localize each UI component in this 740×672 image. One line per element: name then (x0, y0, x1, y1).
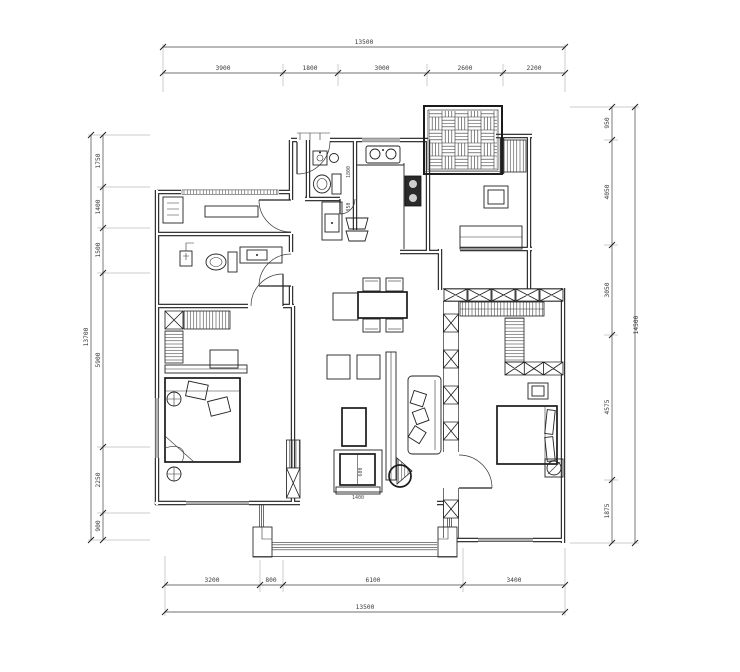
dim-label: 3200 (205, 577, 220, 584)
x-column-closet (165, 311, 183, 329)
x-column-left-band (444, 314, 459, 518)
window-bedroom2-bottom (478, 538, 533, 543)
dim-label: 1800 (346, 166, 352, 178)
dim-label: 800 (265, 577, 276, 584)
dining-chair-icon (363, 278, 380, 291)
balcony-tile-pattern (429, 111, 497, 169)
low-cabinet-icon (460, 226, 522, 249)
desk-icon (484, 186, 508, 208)
dining-chair-icon (386, 319, 403, 332)
dining-chair-icon (386, 278, 403, 291)
dim-label: 14500 (633, 315, 640, 334)
dim-label: 6100 (366, 577, 381, 584)
bay-side-window (260, 505, 452, 527)
dim-label: 3050 (604, 282, 611, 297)
cooktop-icon (405, 176, 421, 206)
dim-label: 1800 (303, 65, 318, 72)
dim-label: 4575 (604, 399, 611, 414)
bedroom1-door (251, 274, 283, 306)
shelf-icon (205, 206, 258, 217)
washbasin-icon (313, 151, 327, 165)
x-column-mid-band (505, 362, 563, 375)
dim-label: 13500 (356, 604, 375, 611)
dim-label: 1500 (95, 242, 102, 257)
wardrobe-icon (165, 331, 183, 363)
bath1-door (259, 254, 291, 286)
dim-label: 600 (358, 467, 364, 476)
window-bedroom1-left (155, 398, 160, 458)
shower-icon (180, 243, 194, 266)
dim-label: 13500 (355, 39, 374, 46)
kitchen-sink-icon (366, 146, 400, 163)
toilet-icon (314, 174, 342, 194)
screen-partition-icon (386, 352, 396, 480)
bay-window-bottom (253, 505, 457, 557)
dim-label: 2600 (458, 65, 473, 72)
corner-cabinet-icon (163, 197, 183, 223)
extension-lines (88, 44, 639, 616)
plant-icon (167, 467, 181, 481)
bay-post (438, 527, 457, 557)
plant-icon (167, 392, 181, 406)
walls (155, 136, 563, 543)
bay-post (253, 527, 272, 557)
entry-threshold (297, 133, 330, 140)
nightstand-icon (528, 383, 548, 399)
dim-label: 2200 (527, 65, 542, 72)
coffee-table-icon (342, 408, 366, 446)
wardrobe-icon (460, 302, 544, 316)
hall-cabinet-icon (322, 202, 342, 240)
bedroom2-door (459, 455, 492, 488)
entry-door (297, 133, 330, 174)
dim-label: 900 (95, 520, 102, 531)
floor-drain-icon (330, 154, 339, 163)
floor-plan-drawing: 13500 3900 1800 3000 2600 2200 3200 800 … (0, 0, 740, 672)
dim-label: 850 (346, 202, 352, 211)
dim-label: 3400 (507, 577, 522, 584)
sideboard-icon (333, 293, 358, 320)
dim-label: 5900 (95, 352, 102, 367)
floor-plan-page: 13500 3900 1800 3000 2600 2200 3200 800 … (0, 0, 740, 672)
floor-cushion-icon (327, 355, 350, 379)
dim-label: 13700 (83, 327, 90, 346)
balcony-top (424, 106, 502, 174)
sofa-icon (408, 376, 441, 454)
shelf-icon (165, 365, 247, 373)
dim-label: 1875 (604, 503, 611, 518)
dim-label: 2250 (95, 472, 102, 487)
floor-cushion-icon (357, 355, 380, 379)
dim-label: 1400 (352, 495, 364, 501)
wardrobe-icon (505, 318, 524, 362)
wardrobe-icon (184, 311, 230, 329)
window-bedroom1-bottom (186, 501, 249, 506)
dim-label: 3000 (375, 65, 390, 72)
dim-label: 1750 (95, 153, 102, 168)
dining-table-icon (358, 292, 407, 318)
washbasin-icon (240, 247, 282, 263)
wall-blocks-bedroom1 (287, 440, 301, 498)
kitchen-counter (357, 163, 404, 249)
bed-icon (497, 406, 557, 464)
window-study-top (181, 190, 279, 195)
x-column-row (444, 289, 563, 301)
dim-label: 3900 (216, 65, 231, 72)
bed-icon (165, 378, 240, 462)
blind-shaft-icon (502, 140, 526, 172)
study-door (259, 200, 291, 232)
windows (155, 138, 533, 543)
dim-label: 950 (604, 117, 611, 128)
window-kitchen-top (362, 138, 400, 143)
dim-label: 4050 (604, 184, 611, 199)
dining-chair-icon (363, 319, 380, 332)
toilet-icon (206, 252, 237, 272)
dim-label: 1400 (95, 199, 102, 214)
